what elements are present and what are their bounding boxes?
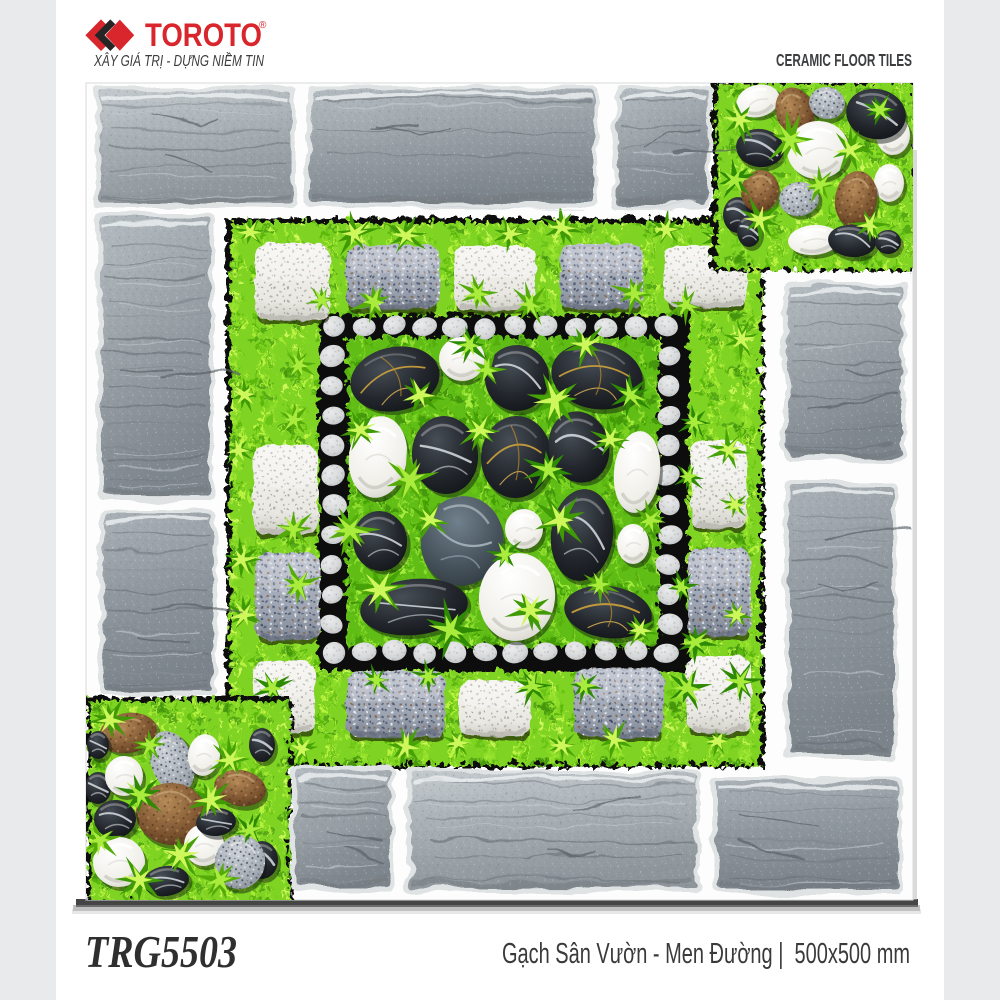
svg-text:Gạch Sân Vườn - Men Đường | 5: Gạch Sân Vườn - Men Đường | 500x500 mm — [502, 938, 910, 970]
svg-text:TRG5503: TRG5503 — [85, 926, 237, 977]
svg-text:TOROTO: TOROTO — [145, 17, 262, 53]
svg-text:CERAMIC FLOOR TILES: CERAMIC FLOOR TILES — [776, 50, 912, 70]
svg-text:®: ® — [259, 20, 267, 31]
svg-text:XÂY GIÁ TRỊ - DỰNG NIỀM TIN: XÂY GIÁ TRỊ - DỰNG NIỀM TIN — [93, 53, 264, 70]
